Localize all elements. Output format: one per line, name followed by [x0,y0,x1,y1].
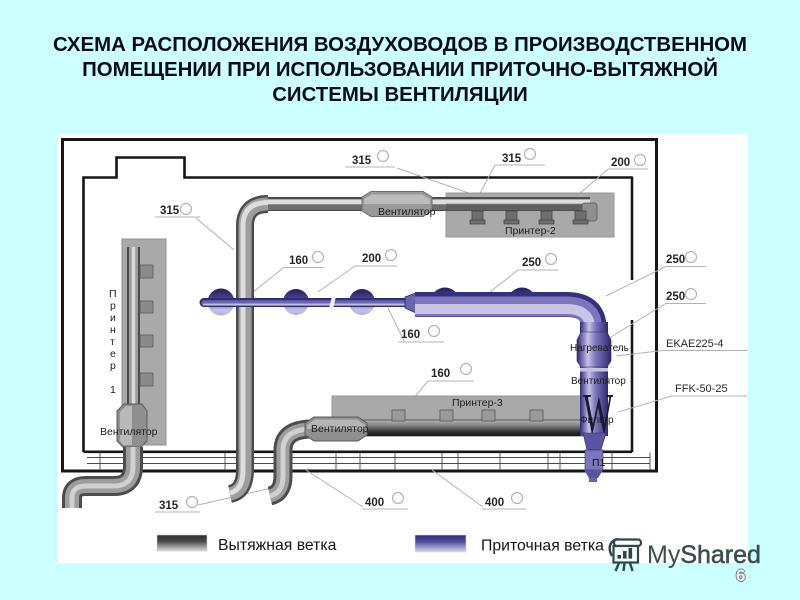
svg-text:Вентилятор: Вентилятор [100,426,158,438]
svg-text:160: 160 [431,368,450,380]
svg-text:Принтер-3: Принтер-3 [452,397,503,409]
svg-text:315: 315 [502,153,522,165]
svg-text:400: 400 [365,497,384,509]
svg-text:Вытяжная ветка: Вытяжная ветка [218,537,337,554]
svg-text:EKAE225-4: EKAE225-4 [666,338,723,350]
svg-text:Вентилятор: Вентилятор [571,376,626,387]
svg-text:200: 200 [362,253,381,265]
svg-text:315: 315 [352,155,372,167]
svg-text:Фильтр: Фильтр [580,415,614,426]
svg-text:FFK-50-25: FFK-50-25 [675,383,728,395]
svg-text:Приточная ветка: Приточная ветка [481,538,604,555]
svg-text:315: 315 [159,500,179,512]
svg-text:Принтер-2: Принтер-2 [505,225,556,237]
svg-text:П1: П1 [592,457,606,469]
svg-text:160: 160 [289,255,308,267]
svg-text:Вентилятор: Вентилятор [311,423,369,435]
svg-text:Вентилятор: Вентилятор [378,206,436,218]
svg-text:315: 315 [160,205,180,217]
svg-text:400: 400 [485,497,504,509]
svg-text:250: 250 [666,254,685,266]
svg-text:200: 200 [611,157,630,169]
svg-text:MyShared: MyShared [647,541,761,569]
svg-text:250: 250 [666,291,685,303]
svg-text:160: 160 [401,329,420,341]
svg-text:Нагреватель: Нагреватель [570,343,629,354]
svg-text:250: 250 [522,257,541,269]
